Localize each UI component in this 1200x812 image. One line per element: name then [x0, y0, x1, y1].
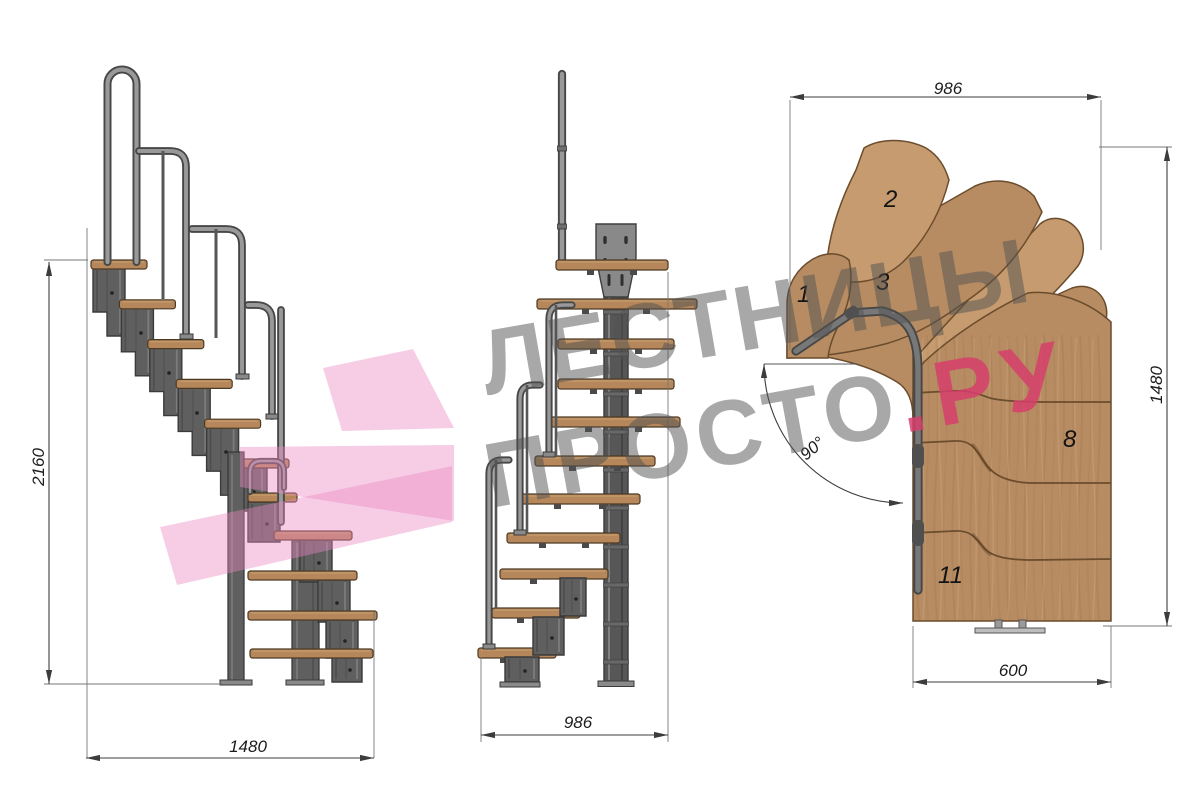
svg-text:600: 600 [999, 661, 1028, 680]
svg-text:986: 986 [934, 79, 963, 98]
svg-text:1480: 1480 [229, 737, 267, 756]
svg-text:2: 2 [883, 186, 897, 213]
svg-text:11: 11 [938, 562, 963, 589]
svg-text:2160: 2160 [29, 448, 48, 487]
svg-text:986: 986 [564, 713, 593, 732]
svg-text:1480: 1480 [1147, 366, 1166, 404]
svg-text:8: 8 [1063, 426, 1077, 453]
